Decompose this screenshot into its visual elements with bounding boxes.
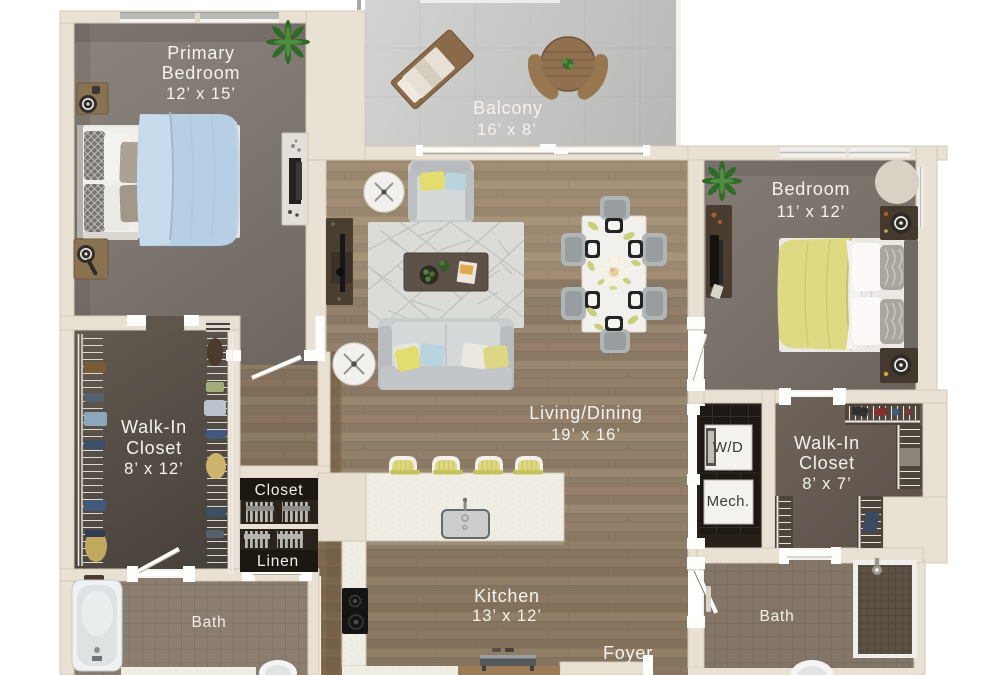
svg-text:13’ x 12’: 13’ x 12’ [472, 607, 542, 625]
svg-text:Walk-In: Walk-In [794, 433, 860, 453]
svg-text:Bedroom: Bedroom [162, 63, 241, 83]
svg-text:19’ x 16’: 19’ x 16’ [551, 426, 621, 444]
svg-text:Bath: Bath [759, 608, 794, 625]
svg-text:8’ x 7’: 8’ x 7’ [802, 475, 852, 493]
svg-text:W/D: W/D [713, 439, 743, 456]
svg-text:8’ x 12’: 8’ x 12’ [124, 460, 184, 478]
svg-text:Linen: Linen [257, 553, 299, 570]
svg-text:Foyer: Foyer [603, 643, 653, 663]
svg-text:Kitchen: Kitchen [474, 586, 540, 606]
svg-text:Walk-In: Walk-In [121, 417, 187, 437]
svg-text:16’ x 8’: 16’ x 8’ [477, 121, 537, 139]
svg-text:Closet: Closet [126, 438, 182, 458]
svg-text:Bath: Bath [191, 614, 226, 631]
svg-text:Primary: Primary [167, 43, 235, 63]
svg-text:Closet: Closet [255, 482, 304, 499]
svg-text:Living/Dining: Living/Dining [529, 403, 642, 423]
svg-text:Bedroom: Bedroom [772, 179, 851, 199]
svg-text:Balcony: Balcony [473, 98, 543, 118]
svg-text:Closet: Closet [799, 453, 855, 473]
svg-text:Mech.: Mech. [707, 493, 750, 510]
svg-text:11’ x 12’: 11’ x 12’ [777, 203, 846, 221]
svg-text:12’ x 15’: 12’ x 15’ [166, 85, 236, 103]
